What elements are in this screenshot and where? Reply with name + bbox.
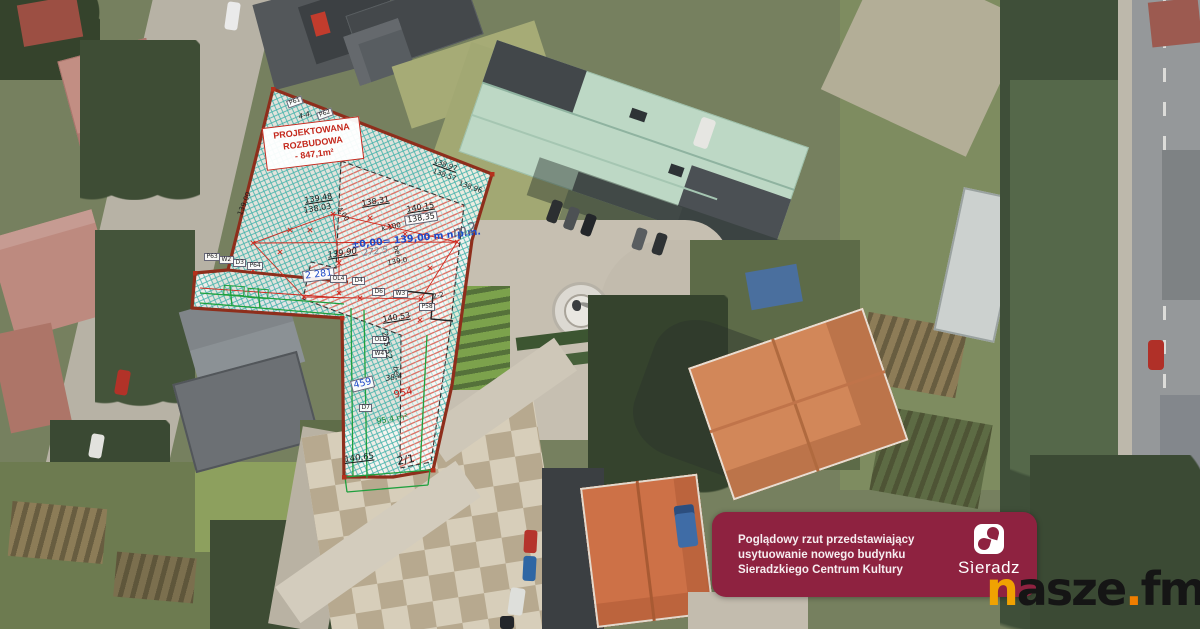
plan-annotation: OL4 <box>330 275 347 283</box>
plan-annotation: 2/1 <box>396 453 415 467</box>
watermark-dot: . <box>1125 562 1140 616</box>
caption-line1: Poglądowy rzut przedstawiający <box>738 533 914 548</box>
plan-annotation: 140,53 <box>382 312 411 324</box>
caption-line2: usytuowanie nowego budynku <box>738 548 914 563</box>
caption-text: Poglądowy rzut przedstawiający usytuowan… <box>738 533 914 578</box>
plan-annotation: 2-2 <box>432 292 445 301</box>
plan-annotation: 459 <box>350 375 375 392</box>
plan-annotation: W3 <box>393 290 408 298</box>
plan-annotation: 138,31 <box>361 196 390 208</box>
plan-annotation: 138,03 <box>303 203 332 215</box>
plan-annotation: 139,00 <box>237 191 253 216</box>
plan-annotation: 272,5 <box>362 246 389 258</box>
watermark-asze: asze <box>1017 562 1125 616</box>
plan-annotation: D3 <box>233 259 246 267</box>
plan-annotation: 138,96 <box>458 180 483 195</box>
plan-annotation: P58 <box>419 303 435 311</box>
plan-annotation: D4 <box>352 277 365 285</box>
plan-annotation: P64 <box>247 262 263 270</box>
plan-annotation: 139,90 <box>327 247 358 260</box>
plan-annotation: 4-4, <box>298 110 313 120</box>
sieradz-logo-icon <box>974 524 1004 554</box>
caption-line3: Sieradzkiego Centrum Kultury <box>738 563 914 578</box>
plan-annotation: 95,4 m² <box>376 413 408 426</box>
plan-annotation: W2 <box>219 256 234 264</box>
plan-annotation: P61 <box>286 95 304 108</box>
nasze-fm-watermark: nasze.fm <box>986 566 1200 612</box>
plan-annotation: k.100 <box>381 222 402 233</box>
watermark-fm: fm <box>1141 562 1200 616</box>
plan-annotation: D6 <box>372 288 385 296</box>
plan-annotation: 38,4 <box>385 372 403 382</box>
aerial-photo-scene: P614-4,P62139,48138,03138,314,00140,1513… <box>0 0 1200 629</box>
plan-annotation: 954 <box>393 387 414 401</box>
plan-annotation: 4,00 <box>335 206 350 223</box>
plan-annotation: P63 <box>204 253 220 261</box>
plan-annotation: D7 <box>359 404 372 412</box>
watermark-n: n <box>986 562 1017 616</box>
plan-annotation: 140,65 <box>344 452 375 464</box>
